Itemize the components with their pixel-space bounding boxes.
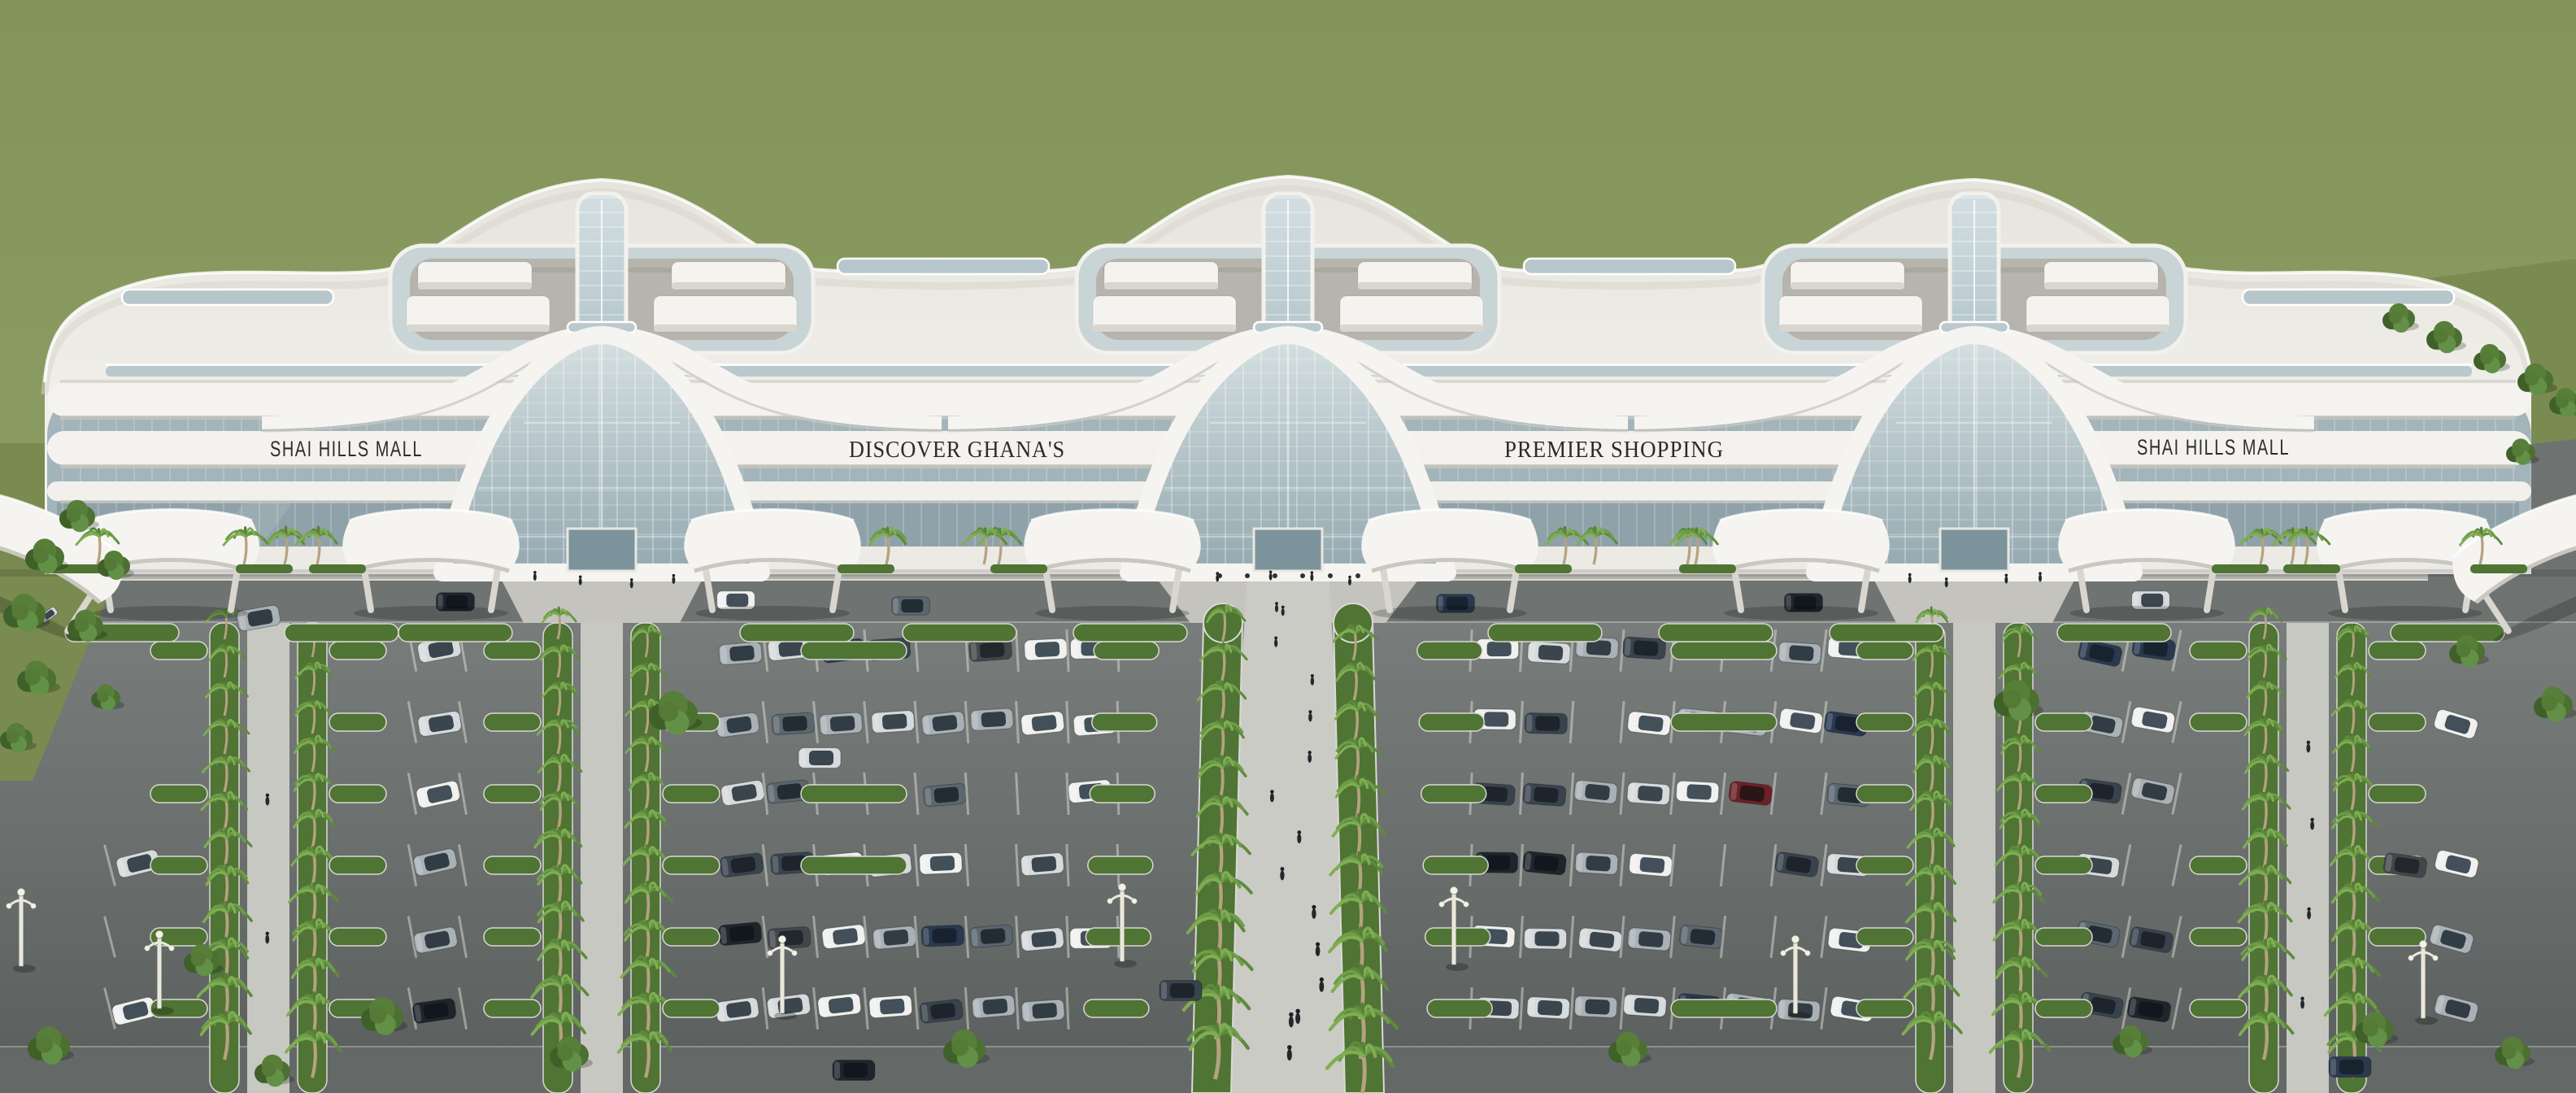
tree-canopy [262,1063,276,1078]
bollard [1300,573,1305,578]
facade-hedge [838,564,894,573]
person-head [630,578,633,581]
person [1945,580,1948,587]
tree-canopy [104,558,117,571]
lamp-globe [2408,956,2413,960]
tree-canopy [75,618,89,633]
lamp-globe [1792,936,1799,943]
lamp-shadow [2415,1017,2438,1025]
car [1778,642,1822,665]
hedge-island [484,785,541,803]
hedge-island [329,856,386,874]
car-glass [833,928,859,946]
car-glass [809,751,833,765]
hedge-island [484,856,541,874]
lamp-pole [158,938,162,1008]
car-glass [782,716,807,732]
car [1627,782,1671,805]
car [868,995,912,1018]
car-hood [921,856,928,873]
hedge-island [2035,856,2092,874]
car-glass [2339,1060,2364,1074]
hedge-island [1417,642,1482,660]
lamp-shadow [1787,1012,1810,1020]
hedge-island [1419,713,1484,731]
lamp-shadow [1114,960,1137,968]
person [2004,577,2008,584]
hedge-island [1671,713,1777,731]
car [1523,783,1567,807]
car [970,708,1013,731]
car-glass [1634,640,1659,656]
canopy-shadow [1724,606,1878,621]
hedge-island [329,713,386,731]
car-glass [932,928,957,943]
car-glass [1789,645,1814,661]
person-head [533,571,537,574]
hedge-island [801,642,907,660]
car-hood [2330,1059,2336,1076]
car [892,597,930,616]
car-hood [873,714,880,731]
walkway-path [581,623,623,1093]
lamp-shadow [13,965,36,973]
hedge-island [329,785,386,803]
car-glass [729,925,755,943]
person [1311,677,1314,686]
car [1627,927,1671,951]
tree-canopy [659,702,678,721]
car-glass [980,928,1005,944]
lamp-globe [2433,956,2438,960]
car-glass [1534,855,1560,872]
car-glass [1170,983,1194,998]
lamp-globe [768,951,772,956]
person [1310,574,1313,581]
hedge-island [2190,713,2247,731]
tree-canopy [7,730,20,743]
hedge-island [150,642,207,660]
person-head [1287,1045,1292,1050]
hedge-island [2369,928,2426,946]
rooftop-box-shadow [2026,324,2169,332]
car-hood [718,593,723,608]
tree-canopy [2120,1034,2134,1048]
lamp-globe [7,904,11,908]
person-head [1269,570,1273,573]
car [1729,781,1773,806]
car-glass [1031,715,1057,732]
hedge-island [1856,642,1913,660]
car [1527,641,1570,664]
car-hood [1677,782,1684,799]
lamp-globe [156,931,163,938]
person-head [1316,942,1320,946]
rooftop-box-shadow [2044,282,2158,290]
car [1623,994,1667,1017]
person [1275,604,1278,612]
hedge-island [2369,642,2426,660]
person-head [1275,602,1278,605]
person [1287,1049,1292,1060]
facade-hedge [990,564,1047,573]
bollard [1245,573,1250,578]
facade-sign-center-right: PREMIER SHOPPING [1504,437,1724,463]
person-head [1289,1012,1293,1017]
hedge-island [1084,999,1149,1017]
car-hood [800,750,806,767]
hedge-island [398,624,512,642]
lamp-shadow [774,1012,797,1020]
tree-canopy [2363,1021,2378,1036]
lamp-pole [781,943,785,1013]
roof-skylight-strip [122,290,333,305]
car [817,993,862,1018]
lamp-globe [2420,941,2427,948]
bollard [1328,573,1333,578]
hedge-island [2190,856,2247,874]
person [1308,713,1312,722]
tree-canopy [2512,445,2523,456]
car-glass [1585,783,1611,800]
car [819,712,863,736]
car-glass [1538,645,1563,661]
hedge-island [663,785,720,803]
person [1281,608,1285,616]
person [1280,870,1284,880]
car-glass [982,998,1007,1014]
person [2306,744,2310,753]
car-glass [1031,931,1057,948]
hedge-island [484,713,541,731]
person [1316,946,1321,956]
facade-hedge [2212,564,2269,573]
person [265,935,269,944]
tree-canopy [2525,372,2539,386]
lamp-pole [1120,891,1125,961]
person-head [1270,790,1274,794]
entrance-door [1254,529,1322,571]
hedge-island [740,624,854,642]
tree-canopy [558,1045,573,1060]
roof-skylight-strip [2243,290,2454,305]
person [1908,576,1912,583]
car [871,710,915,733]
car [1575,852,1618,875]
person [1269,573,1273,581]
tree-canopy [2502,1045,2517,1060]
car [1526,996,1569,1019]
hedge-island [2035,999,2092,1017]
lamp-globe [145,946,150,951]
car [1574,995,1617,1017]
car-glass [880,998,905,1014]
hedge-island [663,856,720,874]
car [772,712,815,735]
walkway-path [247,623,289,1093]
car-glass [1639,857,1664,874]
car-glass [1690,929,1716,946]
person-head [2307,908,2310,911]
car [1525,712,1567,734]
car [1679,925,1723,949]
hedge-island [1427,999,1492,1017]
walkway-path [2287,623,2329,1093]
lamp-pole [1794,943,1798,1013]
tree-canopy [191,952,206,967]
car [1524,928,1566,949]
entrance-door [1940,529,2008,571]
rooftop-box-shadow [1791,282,1904,290]
walkway-path [1953,623,1995,1093]
car-hood [820,716,827,734]
car-glass [1538,1000,1563,1017]
hedge-island [1659,624,1773,642]
car [1627,711,1671,736]
car-glass [933,786,959,803]
car [1020,927,1064,951]
car-hood [834,1062,840,1079]
person-head [579,575,582,578]
rooftop-box-shadow [1358,282,1472,290]
car-glass [1638,931,1664,947]
hedge-island [2035,928,2092,946]
car [768,926,812,949]
person [2307,911,2311,920]
canopy-shadow [2328,606,2482,621]
car-glass [883,929,909,946]
car-hood [1629,784,1635,801]
car-glass [932,715,958,732]
car-glass [882,713,907,729]
person [2310,821,2314,830]
car-glass [1487,642,1512,656]
person-head [2307,741,2310,744]
bollard [1355,573,1360,578]
person-head [1320,978,1324,982]
car [1578,927,1622,951]
hedge-island [801,856,907,874]
car-glass [1634,998,1659,1014]
tree-canopy [33,547,49,563]
car [1522,851,1566,875]
car-glass [1686,784,1712,800]
hedge-island [1856,928,1913,946]
canopy-shadow [94,606,248,621]
facade-sign-center-left: DISCOVER GHANA'S [849,437,1065,463]
car [1021,999,1065,1023]
car [921,711,965,736]
car-hood [1529,643,1535,660]
hedge-island [2035,713,2092,731]
rooftop-box-shadow [407,324,550,332]
car [1020,852,1064,876]
car-hood [1577,854,1583,871]
hedge-island [1086,928,1151,946]
person-head [1295,1009,1299,1013]
person [1270,793,1274,802]
lamp-globe [1119,884,1126,891]
tree-canopy [2434,329,2448,344]
person-head [1297,830,1301,834]
tree-canopy [2542,695,2557,711]
hedge-island [484,928,541,946]
tree-canopy [2480,351,2493,364]
hedge-island [1090,785,1155,803]
hedge-island [329,642,386,660]
person-head [1312,905,1316,909]
car-glass [980,642,1005,658]
tree-canopy [2389,311,2402,324]
car-glass [1534,786,1559,803]
lamp-pole [2422,948,2426,1018]
car-hood [1625,638,1631,655]
person [579,578,582,586]
hedge-island [1856,713,1913,731]
car-hood [1072,640,1077,657]
person [1297,834,1301,843]
car-glass [901,599,923,612]
entrance-door [568,529,636,571]
car [833,1060,875,1081]
car-glass [830,716,855,732]
hedge-island [1092,713,1157,731]
person [1308,754,1312,763]
facade-hedge [1679,564,1736,573]
car-glass [2141,594,2163,607]
car-glass [777,783,803,800]
car-glass [1032,1003,1057,1019]
hedge-island [1094,642,1159,660]
car [1024,638,1067,660]
car [872,925,916,950]
car-glass [778,640,804,657]
car [923,783,967,808]
person-head [1945,577,1948,581]
person-head [2310,818,2313,821]
facade-hedge [236,564,293,573]
car-hood [772,856,778,873]
hedge-island [2057,624,2171,642]
hedge-island [2190,999,2247,1017]
tree-canopy [36,1036,53,1053]
car-hood [2133,593,2138,608]
facade-hedge [2283,564,2340,573]
hedge-island [1425,928,1490,946]
car-glass [1739,785,1765,802]
car-glass [1486,855,1510,869]
lamp-globe [31,904,36,908]
car [1573,780,1617,804]
car [972,995,1016,1018]
car [1160,981,1202,1001]
car-glass [1638,786,1663,802]
tree-canopy [2556,395,2569,408]
hedge-island [801,785,907,803]
tree-canopy [2456,643,2471,658]
lamp-globe [169,946,174,951]
car-glass [726,594,748,607]
lamp-globe [1464,902,1469,907]
hedge-island [150,785,207,803]
car-hood [972,712,978,729]
rooftop-box-shadow [1104,282,1218,290]
car-hood [1072,930,1077,947]
hedge-island [1856,785,1913,803]
tree-canopy [97,690,108,702]
car [1622,637,1665,660]
lamp-globe [1132,899,1137,904]
person [1319,981,1324,991]
rooftop-box-shadow [418,282,532,290]
lamp-globe [1805,951,1810,956]
facade-sign-right: SHAI HILLS MALL [2137,435,2290,459]
hedge-island [2190,642,2247,660]
lamp-globe [1451,887,1458,895]
rooftop-box-shadow [1093,324,1236,332]
hedge-island [663,999,720,1017]
car [1629,853,1673,877]
person-head [672,574,676,577]
hedge-island [1423,856,1488,874]
car-glass [1586,856,1611,872]
car [921,925,964,947]
hedge-island [1671,999,1777,1017]
car-hood [773,716,780,733]
rooftop-box-shadow [1779,324,1922,332]
person [1348,578,1351,586]
person-head [1308,710,1312,713]
person [1274,639,1277,647]
hedge-island [285,624,398,642]
facade-sign-left: SHAI HILLS MALL [270,437,423,461]
car-glass [1585,999,1610,1014]
person-head [266,932,269,935]
car-hood [1161,982,1167,999]
lamp-pole [20,896,24,966]
car [969,925,1013,948]
hedge-island [663,928,720,946]
car-glass [1031,856,1056,872]
car [919,852,962,874]
car-hood [923,928,929,945]
car [718,921,762,946]
rooftop-box-shadow [654,324,797,332]
lamp-shadow [1446,963,1469,971]
hedge-island [1671,642,1777,660]
person-head [1311,674,1314,677]
rendering-canvas: SHAI HILLS MALL DISCOVER GHANA'S PREMIER… [0,0,2576,1093]
car-hood [1780,643,1786,660]
car [1020,711,1064,735]
hedge-island [1073,624,1187,642]
facade-hedge [309,564,366,573]
car [798,748,841,769]
bollard [1273,573,1277,578]
rooftop-box-shadow [1340,324,1483,332]
lamp-globe [18,889,25,896]
person-head [2300,997,2304,1000]
person [1289,1017,1294,1028]
car-hood [1576,997,1582,1014]
canopy-shadow [695,606,850,621]
car [719,642,763,665]
car-hood [1526,715,1532,732]
car-glass [1484,712,1508,726]
person-head [1348,576,1351,579]
car-glass [730,856,756,874]
roof-skylight-strip [838,259,1049,274]
